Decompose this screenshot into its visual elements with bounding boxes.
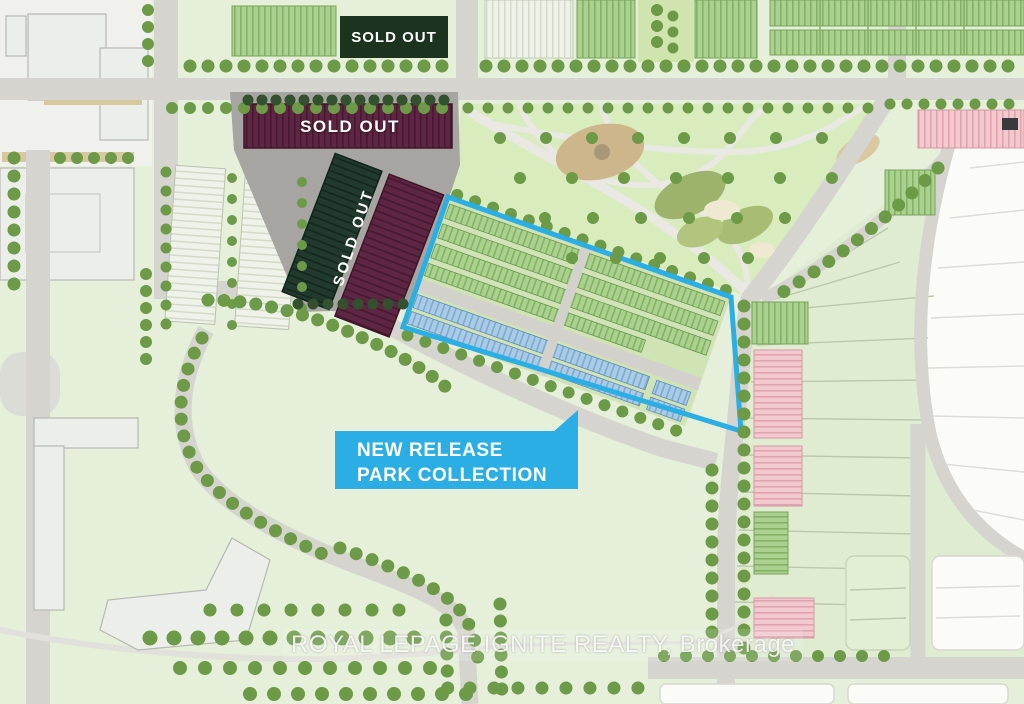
townhome-row-pink <box>754 446 802 506</box>
townhome-row <box>754 512 788 574</box>
townhome-row <box>770 30 1024 55</box>
green-block <box>846 556 910 650</box>
white-block <box>660 684 834 704</box>
sold-out-badge-top: SOLD OUT <box>340 16 448 58</box>
townhome-row <box>485 0 573 58</box>
brokerage-watermark: ROYAL LEPAGE IGNITE REALTY, Brokerage <box>283 629 803 661</box>
building <box>0 168 134 280</box>
tree-mews <box>638 0 694 62</box>
callout-line-1: NEW RELEASE <box>357 438 578 463</box>
building <box>6 16 26 56</box>
site-plan-screenshot: SOLD OUT SOLD OUT SOLD OUT NEW RELEASE P… <box>0 0 1024 704</box>
sold-out-vertical-text: SOLD OUT <box>330 186 378 288</box>
townhome-row <box>232 6 336 56</box>
townhome-row <box>165 165 226 324</box>
townhome-row-pink <box>754 350 802 438</box>
sold-out-badge-mid: SOLD OUT <box>252 109 448 145</box>
townhome-row <box>577 0 635 58</box>
white-block <box>932 556 1024 650</box>
sold-out-badge-vertical: SOLD OUT <box>296 162 412 312</box>
car <box>1002 118 1018 130</box>
site-plan-map <box>0 0 1024 704</box>
townhome-row <box>752 302 808 344</box>
townhome-row <box>770 0 1024 26</box>
townhome-row <box>695 0 757 58</box>
new-release-callout: NEW RELEASE PARK COLLECTION <box>335 431 578 489</box>
white-block <box>848 684 1008 704</box>
building <box>34 446 64 610</box>
building <box>34 418 138 448</box>
callout-line-2: PARK COLLECTION <box>357 463 578 488</box>
playground-feature <box>594 144 610 160</box>
